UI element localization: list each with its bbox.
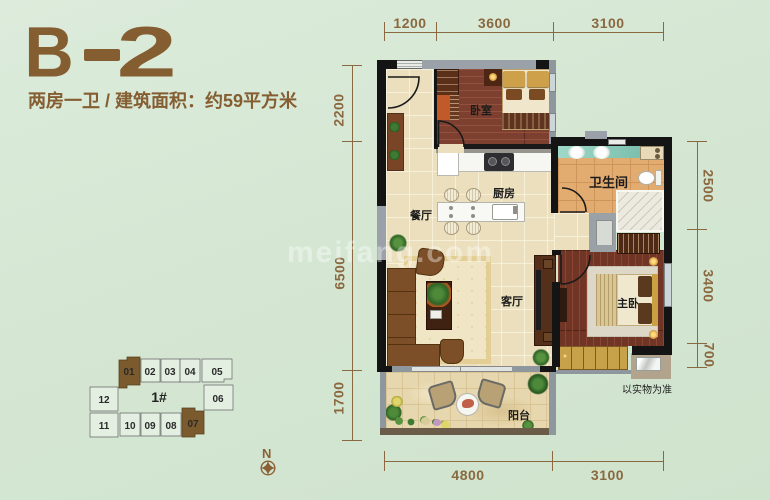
svg-text:1#: 1# [151, 389, 167, 405]
svg-text:08: 08 [165, 421, 177, 432]
svg-text:06: 06 [212, 394, 224, 405]
svg-text:01: 01 [123, 367, 135, 378]
svg-text:11: 11 [99, 421, 110, 432]
svg-text:04: 04 [184, 367, 196, 378]
svg-text:03: 03 [164, 367, 176, 378]
svg-text:12: 12 [98, 395, 110, 406]
svg-text:05: 05 [211, 367, 223, 378]
svg-text:07: 07 [187, 419, 199, 430]
svg-text:10: 10 [124, 421, 136, 432]
svg-text:09: 09 [144, 421, 156, 432]
svg-text:02: 02 [144, 367, 156, 378]
